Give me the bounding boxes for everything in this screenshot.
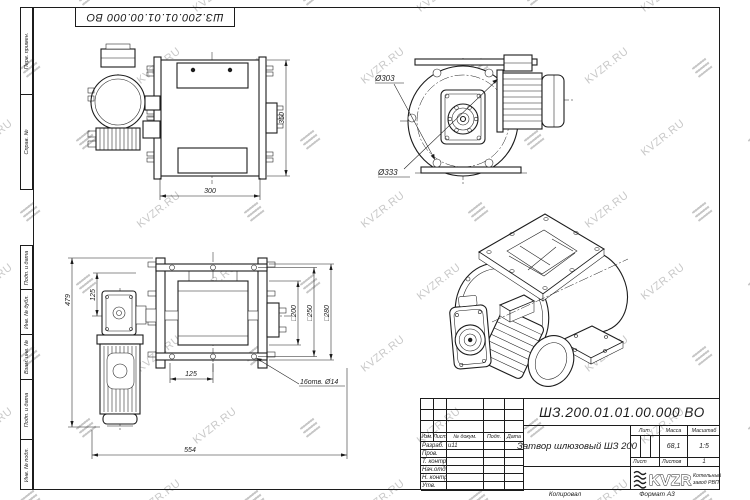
dim-125-horizontal: 125 — [185, 371, 197, 378]
watermark-logo-icon — [746, 416, 750, 437]
margin-label: Подп. и дата — [24, 250, 30, 284]
titleblock-cell — [447, 421, 484, 433]
titleblock-cell: Н. контр. — [421, 474, 447, 482]
side-view: 300 350 — [58, 38, 310, 210]
dim-d303: Ø303 — [374, 74, 395, 83]
front-view: 479 125 125 554 □200 □250 □280 — [60, 248, 360, 470]
titleblock-cell — [447, 410, 484, 421]
margin-column: Перв. примен. Справ. № Подп. и дата Инв.… — [20, 7, 33, 490]
margin-cell: Подп. и дата — [20, 245, 33, 290]
margin-label: Взам. инв. № — [24, 340, 30, 374]
margin-cell: Инв. № дубл. — [20, 290, 33, 335]
titleblock-cell — [421, 421, 434, 433]
dim-479: 479 — [65, 294, 72, 306]
scale-header: Масштаб — [687, 425, 720, 435]
titleblock-cell — [434, 410, 447, 421]
titleblock-cell — [447, 466, 484, 474]
margin-label: Перв. примен. — [24, 33, 30, 70]
scale-value: 1:5 — [687, 435, 720, 457]
margin-cell: Взам. инв. № — [20, 335, 33, 380]
titleblock-cell — [434, 421, 447, 433]
titleblock-cell — [447, 458, 484, 466]
margin-cell: Справ. № — [20, 95, 33, 190]
watermark-logo-icon — [18, 488, 40, 500]
titleblock-cell — [484, 474, 505, 482]
company-logo: KVZR Котельный завод РВП — [631, 467, 721, 491]
titleblock-cell — [484, 450, 505, 458]
kvzr-logo-text: KVZR — [649, 472, 692, 489]
titleblock-cell — [484, 442, 505, 450]
titleblock-cell — [505, 399, 524, 410]
titleblock-cell: № докум. — [447, 433, 484, 442]
titleblock-cell — [447, 450, 484, 458]
dim-554: 554 — [184, 447, 196, 454]
doc-number: ШЗ.200.01.01.00.000 ВО — [539, 405, 705, 420]
titleblock-cell — [447, 482, 484, 491]
watermark-logo-icon — [522, 0, 544, 6]
dim-350: 350 — [279, 112, 286, 124]
lit-cell-1 — [630, 435, 640, 457]
footer-format-label: Формат А3 — [617, 491, 697, 498]
margin-cell: Инв. № подл. — [20, 440, 33, 490]
titleblock-cell: Подп. — [484, 433, 505, 442]
watermark-text: KVZR.RU — [0, 0, 15, 15]
lit-cell-3 — [650, 435, 659, 457]
titleblock-cell — [505, 421, 524, 433]
titleblock-cell — [447, 399, 484, 410]
watermark-text: KVZR.RU — [0, 261, 15, 302]
lit-header: Лит. — [630, 425, 659, 435]
drawing-sheet: KVZR.RUKVZR.RUKVZR.RUKVZR.RUKVZR.RUKVZR.… — [0, 0, 750, 500]
lit-cell-2 — [640, 435, 650, 457]
watermark-logo-icon — [74, 0, 96, 6]
titleblock-cell: Изм. — [421, 433, 434, 442]
titleblock-cell — [505, 474, 524, 482]
titleblock-cell: Нач.отд. — [421, 466, 447, 474]
watermark-logo-icon — [746, 272, 750, 293]
company-name-line1: Котельный — [693, 472, 721, 479]
margin-cell: Подп. и дата — [20, 380, 33, 440]
titleblock-cell — [505, 466, 524, 474]
titleblock-doc-number-cell: ШЗ.200.01.01.00.000 ВО — [523, 398, 720, 425]
titleblock-cell: Разраб. — [421, 442, 447, 450]
company-cell: KVZR Котельный завод РВП — [630, 466, 720, 490]
mass-header: Масса — [659, 425, 687, 435]
dim-125-vertical: 125 — [90, 289, 97, 301]
dim-d333: Ø333 — [377, 168, 398, 177]
titleblock-cell — [421, 399, 434, 410]
titleblock-cell — [505, 458, 524, 466]
footer-copied-label: Копировал — [520, 491, 610, 498]
titleblock-cell — [447, 474, 484, 482]
watermark-logo-icon — [746, 0, 750, 6]
sheets-label: Листов — [659, 457, 687, 466]
margin-label: Подп. и дата — [24, 392, 30, 426]
titleblock-cell — [421, 410, 434, 421]
holes-note: 16отв. Ø14 — [300, 379, 338, 386]
titleblock-cell — [484, 482, 505, 491]
titleblock-left-table: Изм.Лист№ докум.Подп.ДатаРазраб.и11Пров.… — [420, 398, 524, 490]
margin-label: Справ. № — [24, 130, 30, 155]
watermark-logo-icon — [242, 488, 264, 500]
top-doc-number-box: ШЗ.200.01.01.00.000 ВО — [75, 7, 235, 27]
titleblock-cell — [505, 482, 524, 491]
isometric-view — [428, 196, 690, 402]
margin-cell-gap — [20, 190, 33, 245]
dim-sq280: □280 — [324, 305, 331, 321]
watermark-text: KVZR.RU — [0, 405, 15, 446]
kvzr-coil-icon — [634, 472, 646, 489]
titleblock-cell: Утв. — [421, 482, 447, 491]
titleblock-cell: и11 — [447, 442, 484, 450]
dim-sq250: □250 — [307, 305, 314, 321]
margin-label: Инв. № дубл. — [24, 295, 30, 329]
end-view: Ø303 Ø333 — [355, 40, 595, 205]
titleblock-cell: Лист — [434, 433, 447, 442]
titleblock-cell — [484, 410, 505, 421]
watermark-logo-icon — [746, 128, 750, 149]
titleblock-cell — [484, 399, 505, 410]
watermark-text: KVZR.RU — [0, 117, 15, 158]
watermark-logo-icon — [298, 0, 320, 6]
dim-300: 300 — [204, 188, 216, 195]
part-title: Затвор шлюзовый ШЗ 200 — [524, 426, 630, 467]
titleblock-name-cell: Затвор шлюзовый ШЗ 200 — [523, 425, 630, 490]
company-name-line2: завод РВП — [692, 480, 719, 486]
titleblock-cell — [434, 399, 447, 410]
dim-sq200: □200 — [291, 305, 298, 321]
top-doc-number: ШЗ.200.01.01.00.000 ВО — [86, 11, 223, 23]
titleblock-cell: Т. контр. — [421, 458, 447, 466]
titleblock-cell — [484, 421, 505, 433]
sheet-label: Лист — [630, 457, 659, 466]
titleblock-cell — [484, 466, 505, 474]
titleblock-cell — [505, 410, 524, 421]
sheets-value: 1 — [687, 457, 720, 466]
margin-cell: Перв. примен. — [20, 7, 33, 95]
titleblock-cell — [484, 458, 505, 466]
margin-label: Инв. № подл. — [24, 447, 30, 481]
titleblock-cell: Пров. — [421, 450, 447, 458]
mass-value: 68,1 — [659, 435, 687, 457]
